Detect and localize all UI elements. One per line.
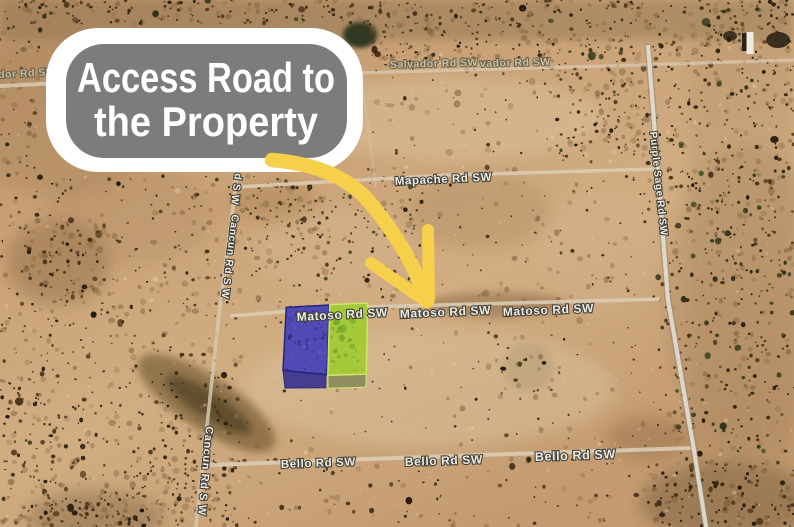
svg-text:the Property: the Property — [94, 98, 319, 145]
svg-text:Bello Rd SW: Bello Rd SW — [535, 447, 616, 464]
svg-text:Salvador Rd SW: Salvador Rd SW — [390, 57, 478, 71]
svg-text:Bello Rd SW: Bello Rd SW — [405, 452, 483, 469]
svg-text:vador Rd SW: vador Rd SW — [480, 56, 551, 70]
svg-text:Access Road to: Access Road to — [77, 54, 335, 101]
